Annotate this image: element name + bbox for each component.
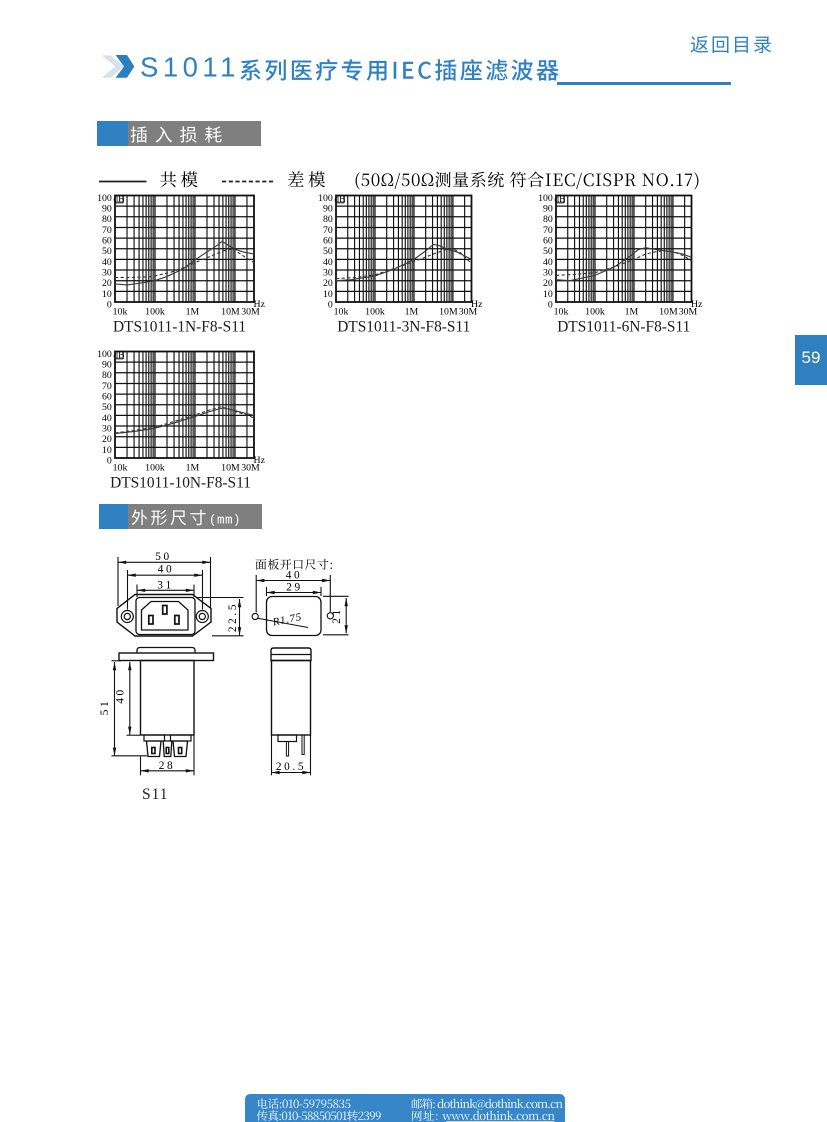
svg-text:50: 50 <box>543 246 553 257</box>
svg-text:70: 70 <box>323 225 333 236</box>
svg-text:100: 100 <box>97 193 112 204</box>
svg-text:10: 10 <box>323 289 333 300</box>
svg-text:DTS1011-10N-F8-S11: DTS1011-10N-F8-S11 <box>110 474 251 491</box>
svg-text:70: 70 <box>543 225 553 236</box>
svg-text:20: 20 <box>102 434 112 445</box>
svg-text:10M: 10M <box>221 462 240 473</box>
svg-text:10: 10 <box>102 444 112 455</box>
svg-text:100: 100 <box>318 193 333 204</box>
svg-text:10M: 10M <box>439 307 458 318</box>
svg-text:50: 50 <box>102 246 112 257</box>
svg-text:100: 100 <box>97 348 112 359</box>
svg-text:40: 40 <box>323 257 333 268</box>
svg-text:10: 10 <box>543 289 553 300</box>
svg-text:10: 10 <box>102 289 112 300</box>
svg-text:100k: 100k <box>365 307 385 318</box>
svg-text:DTS1011-3N-F8-S11: DTS1011-3N-F8-S11 <box>337 319 470 336</box>
svg-text:30: 30 <box>543 267 553 278</box>
svg-text:50: 50 <box>102 402 112 413</box>
svg-text:dB: dB <box>113 195 124 205</box>
svg-text:20: 20 <box>323 278 333 289</box>
svg-text:1M: 1M <box>625 307 639 318</box>
svg-text:40: 40 <box>102 257 112 268</box>
svg-text:80: 80 <box>543 214 553 225</box>
svg-text:60: 60 <box>543 236 553 247</box>
svg-text:30: 30 <box>323 267 333 278</box>
svg-text:70: 70 <box>102 380 112 391</box>
svg-text:10k: 10k <box>333 307 348 318</box>
svg-text:(mm): (mm) <box>209 513 241 527</box>
svg-text:70: 70 <box>102 225 112 236</box>
svg-text:50: 50 <box>155 551 172 563</box>
svg-text:30: 30 <box>102 423 112 434</box>
svg-text:100k: 100k <box>145 307 165 318</box>
svg-text:100k: 100k <box>145 462 165 473</box>
svg-text:10M: 10M <box>221 307 240 318</box>
svg-text:10k: 10k <box>112 462 127 473</box>
svg-text:Hz: Hz <box>691 299 703 310</box>
svg-text:100k: 100k <box>585 307 605 318</box>
svg-text:40: 40 <box>102 412 112 423</box>
svg-text:40: 40 <box>543 257 553 268</box>
svg-text:90: 90 <box>102 359 112 370</box>
svg-text:40: 40 <box>115 687 127 704</box>
svg-text:20: 20 <box>102 278 112 289</box>
svg-text:90: 90 <box>102 204 112 215</box>
svg-text:29: 29 <box>286 582 303 594</box>
svg-text:60: 60 <box>102 236 112 247</box>
svg-text:40: 40 <box>286 570 303 582</box>
svg-text:10k: 10k <box>554 307 569 318</box>
svg-text:Hz: Hz <box>253 455 265 466</box>
svg-text:28: 28 <box>159 760 176 772</box>
svg-text:51: 51 <box>99 699 111 716</box>
svg-text:S1011: S1011 <box>140 52 240 83</box>
svg-text:DTS1011-6N-F8-S11: DTS1011-6N-F8-S11 <box>557 319 690 336</box>
svg-text:0: 0 <box>327 299 332 310</box>
svg-text:21: 21 <box>331 607 343 624</box>
svg-text:dB: dB <box>334 195 345 205</box>
svg-text:20: 20 <box>543 278 553 289</box>
svg-text:1M: 1M <box>186 307 200 318</box>
svg-text:20.5: 20.5 <box>276 761 306 773</box>
svg-text:10M: 10M <box>659 307 678 318</box>
svg-text:80: 80 <box>323 214 333 225</box>
svg-text:DTS1011-1N-F8-S11: DTS1011-1N-F8-S11 <box>113 319 246 336</box>
svg-text:0: 0 <box>107 299 112 310</box>
svg-text:22.5: 22.5 <box>227 602 239 632</box>
svg-text:60: 60 <box>323 236 333 247</box>
svg-text:Hz: Hz <box>471 299 483 310</box>
svg-text:100: 100 <box>538 193 553 204</box>
svg-text:dB: dB <box>113 351 124 361</box>
svg-text:80: 80 <box>102 214 112 225</box>
svg-text:dB: dB <box>554 195 565 205</box>
svg-text:31: 31 <box>157 579 174 591</box>
svg-text:0: 0 <box>106 455 111 466</box>
svg-text:60: 60 <box>102 391 112 402</box>
svg-text:Hz: Hz <box>254 299 266 310</box>
svg-text:1M: 1M <box>185 462 199 473</box>
svg-text:50: 50 <box>323 246 333 257</box>
svg-text:80: 80 <box>102 370 112 381</box>
svg-text:40: 40 <box>158 564 175 576</box>
svg-text:S11: S11 <box>142 786 169 803</box>
svg-text:0: 0 <box>548 299 553 310</box>
svg-text:30: 30 <box>102 267 112 278</box>
svg-text:10k: 10k <box>113 307 128 318</box>
svg-text:90: 90 <box>543 204 553 215</box>
svg-text:90: 90 <box>323 204 333 215</box>
svg-text:1M: 1M <box>404 307 418 318</box>
